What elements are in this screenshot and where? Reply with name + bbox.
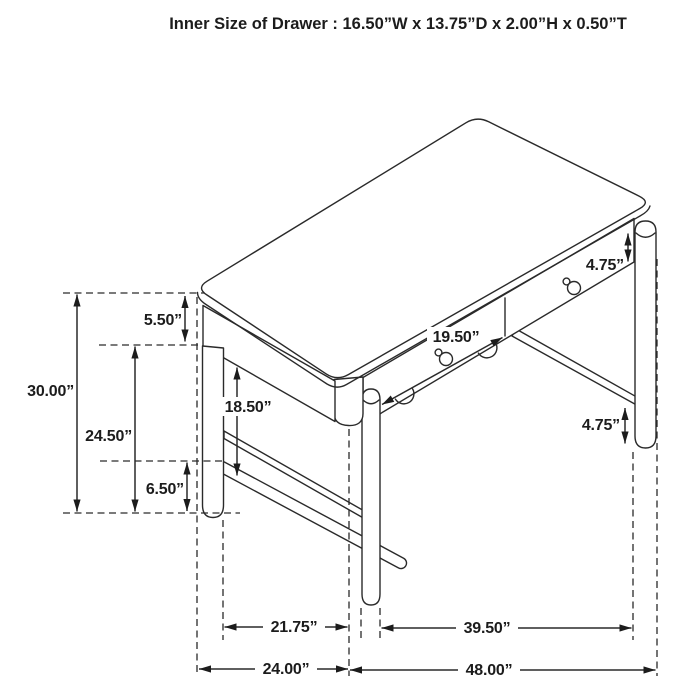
- dim-inner-width-label: 39.50”: [464, 620, 511, 637]
- dim-leg-below-stretcher-label: 4.75”: [582, 417, 620, 434]
- desk-dimension-diagram: Inner Size of Drawer : 16.50”W x 13.75”D…: [0, 0, 700, 700]
- desk-drawing: [198, 119, 657, 605]
- dim-apron-to-stretcher-label: 18.50”: [225, 399, 272, 416]
- dim-stretcher-to-floor-label: 6.50”: [146, 481, 184, 498]
- dim-drawer-width-label: 19.50”: [433, 329, 480, 346]
- right-side-rail: [512, 329, 642, 408]
- dim-overall-width-label: 48.00”: [466, 662, 513, 679]
- front-leg: [362, 389, 380, 605]
- desk-tabletop: [202, 119, 646, 378]
- left-drawer-knob-stem: [435, 349, 442, 356]
- desk-dimension-diagram-page: Inner Size of Drawer : 16.50”W x 13.75”D…: [0, 0, 700, 700]
- right-drawer-knob-stem: [563, 278, 570, 285]
- dim-overall-height-label: 30.00”: [27, 383, 74, 400]
- dim-top-to-apron-label: 5.50”: [144, 312, 182, 329]
- left-leg: [203, 346, 224, 518]
- page-title: Inner Size of Drawer : 16.50”W x 13.75”D…: [169, 15, 627, 33]
- dim-inner-depth-label: 21.75”: [271, 619, 318, 636]
- right-leg: [635, 221, 656, 448]
- front-corner-post: [334, 377, 363, 426]
- dim-drawer-height-label: 4.75”: [586, 257, 624, 274]
- dim-floor-to-apron-label: 24.50”: [85, 428, 132, 445]
- dim-overall-depth-label: 24.00”: [263, 661, 310, 678]
